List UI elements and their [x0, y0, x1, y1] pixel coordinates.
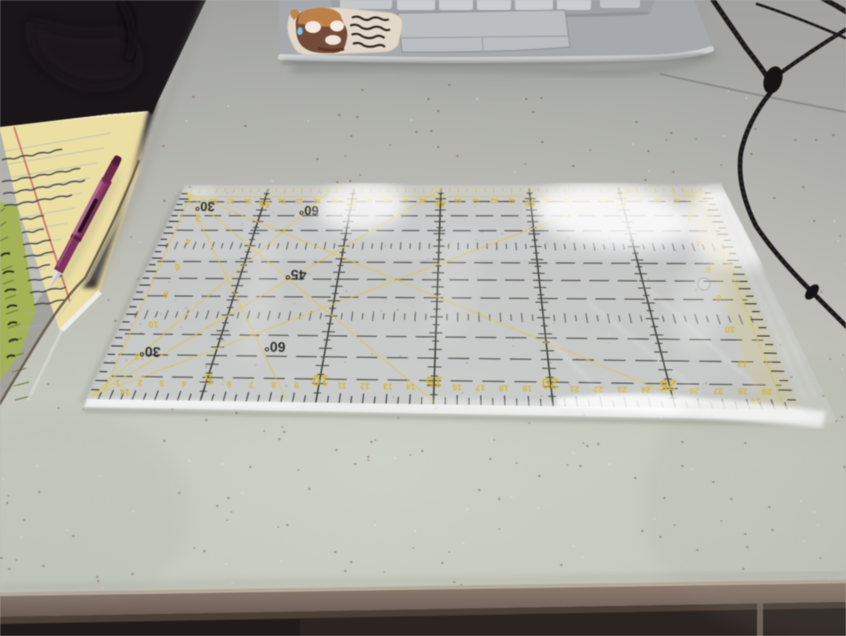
svg-text:12: 12: [360, 381, 370, 391]
svg-text:4: 4: [181, 379, 186, 389]
svg-text:12: 12: [737, 359, 747, 369]
svg-text:44: 44: [454, 197, 462, 204]
svg-text:23: 23: [617, 385, 627, 395]
svg-text:2: 2: [137, 378, 142, 388]
svg-text:41: 41: [508, 197, 516, 204]
svg-text:19: 19: [522, 383, 532, 393]
svg-text:57: 57: [226, 197, 234, 204]
svg-text:24: 24: [641, 385, 651, 395]
svg-text:55: 55: [258, 197, 270, 208]
svg-text:42: 42: [490, 197, 498, 204]
svg-text:14: 14: [120, 387, 130, 397]
svg-text:60°: 60°: [264, 339, 286, 356]
svg-text:60°: 60°: [299, 203, 319, 219]
svg-text:45°: 45°: [285, 267, 307, 284]
svg-text:15: 15: [426, 373, 443, 390]
svg-text:16: 16: [452, 382, 462, 392]
svg-text:43: 43: [472, 197, 480, 204]
svg-text:54: 54: [278, 197, 286, 204]
svg-text:8: 8: [271, 380, 276, 390]
svg-text:8: 8: [163, 290, 168, 300]
svg-text:1: 1: [115, 378, 120, 388]
svg-text:21: 21: [569, 384, 579, 394]
svg-text:4: 4: [185, 237, 190, 247]
svg-text:56: 56: [244, 197, 252, 204]
svg-text:6: 6: [226, 379, 231, 389]
svg-text:7: 7: [249, 380, 254, 390]
svg-text:10: 10: [725, 324, 735, 334]
svg-text:10: 10: [148, 319, 158, 329]
svg-text:14: 14: [406, 382, 416, 392]
svg-text:30°: 30°: [195, 199, 215, 215]
svg-text:9: 9: [294, 380, 299, 390]
svg-text:6: 6: [175, 262, 180, 272]
svg-text:18: 18: [499, 383, 509, 393]
svg-text:30°: 30°: [139, 344, 161, 361]
svg-text:10: 10: [312, 371, 329, 388]
svg-text:17: 17: [475, 383, 485, 393]
svg-text:5: 5: [204, 370, 213, 387]
svg-text:11: 11: [337, 381, 347, 391]
svg-text:45: 45: [434, 197, 446, 208]
svg-text:3: 3: [159, 378, 164, 388]
svg-text:46: 46: [419, 197, 427, 204]
svg-text:13: 13: [383, 381, 393, 391]
svg-text:20: 20: [541, 374, 558, 391]
svg-text:25: 25: [659, 376, 676, 393]
